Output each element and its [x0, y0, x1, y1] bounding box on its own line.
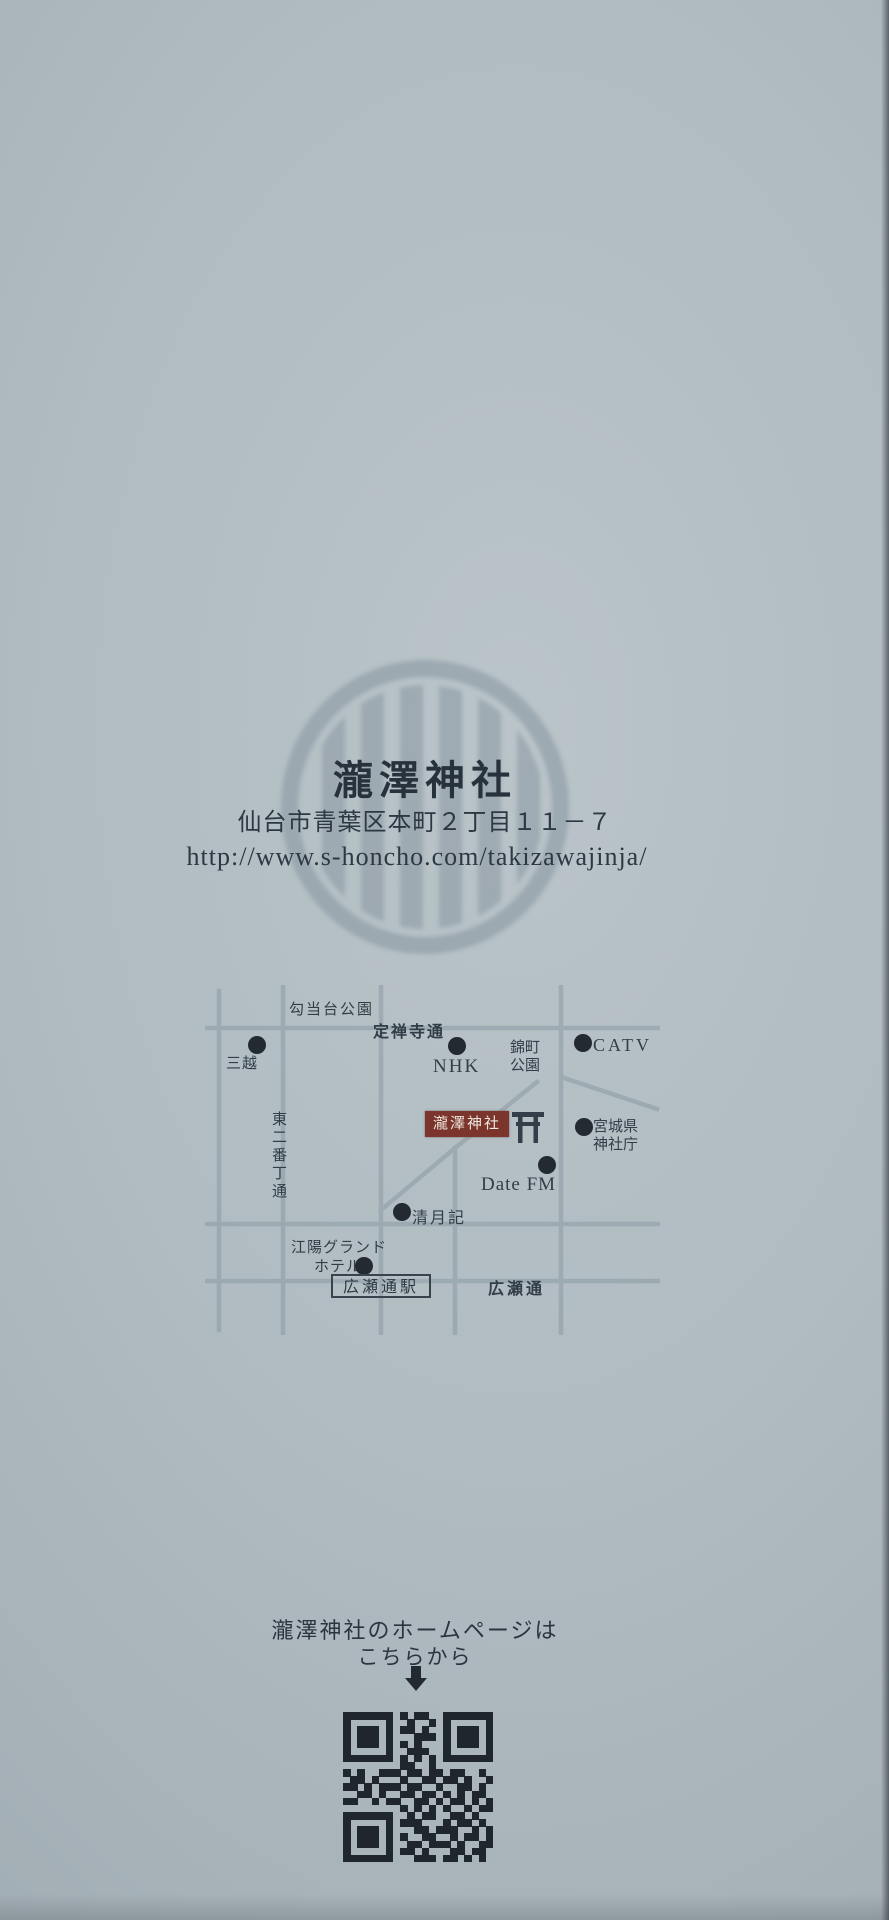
label-koyo-hotel-line1: 江陽グランド: [291, 1236, 387, 1257]
label-hirose-dori: 広瀬通: [488, 1275, 545, 1299]
dot-date-fm: [538, 1156, 556, 1174]
shrine-title: 瀧澤神社: [0, 748, 850, 806]
label-nishikimachi-park: 錦町 公園: [503, 1039, 547, 1075]
dot-seigetsuki: [393, 1203, 411, 1221]
page-edge-shadow-bottom: [0, 1894, 889, 1920]
label-mitsukoshi: 三越: [226, 1052, 258, 1073]
dot-koyo-hotel: [355, 1257, 373, 1275]
down-arrow-icon: [405, 1666, 427, 1692]
label-higashi-nibancho-dori: 東二番丁通: [268, 1111, 289, 1201]
label-jinjacho: 宮城県 神社庁: [593, 1118, 638, 1154]
label-nhk: NHK: [433, 1056, 480, 1078]
dot-nhk: [448, 1037, 466, 1055]
brochure-page: 瀧澤神社 仙台市青葉区本町２丁目１１－７ http://www.s-honcho…: [0, 0, 889, 1920]
label-koutoudai-park: 勾当台公園: [289, 998, 374, 1019]
area-map: 勾当台公園 定禅寺通 東二番丁通 広瀬通 三越 NHK 錦町 公園 CATV 瀧…: [205, 985, 660, 1335]
hirose-station-box: 広瀬通駅: [331, 1274, 431, 1298]
shrine-url: http://www.s-honcho.com/takizawajinja/: [0, 842, 834, 872]
page-edge-shadow-right: [881, 0, 889, 1920]
label-jozenji-dori: 定禅寺通: [373, 1018, 445, 1042]
dot-catv: [574, 1034, 592, 1052]
shrine-address: 仙台市青葉区本町２丁目１１－７: [0, 802, 850, 837]
torii-icon: [512, 1109, 544, 1143]
qr-code: [343, 1712, 493, 1862]
dot-jinjacho: [575, 1118, 593, 1136]
label-catv: CATV: [593, 1035, 652, 1056]
label-date-fm: Date FM: [481, 1174, 556, 1196]
label-seigetsuki: 清月記: [412, 1204, 466, 1228]
shrine-marker: 瀧澤神社: [425, 1111, 509, 1137]
